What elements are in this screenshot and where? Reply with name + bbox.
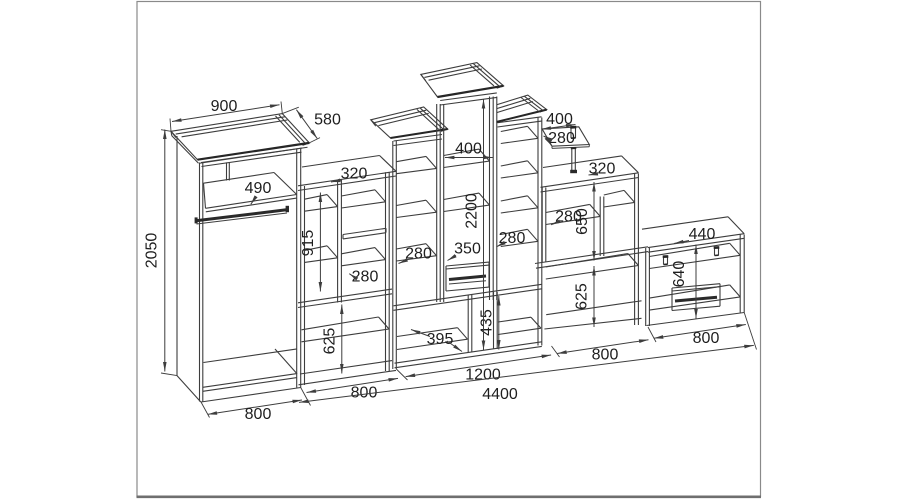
svg-text:900: 900 — [211, 98, 238, 115]
svg-text:800: 800 — [592, 347, 619, 364]
svg-text:280: 280 — [405, 246, 432, 263]
svg-text:640: 640 — [671, 261, 688, 288]
svg-text:650: 650 — [574, 208, 591, 235]
svg-text:800: 800 — [245, 406, 272, 423]
svg-text:800: 800 — [693, 330, 720, 347]
svg-text:4400: 4400 — [482, 386, 518, 403]
svg-text:350: 350 — [454, 241, 481, 258]
svg-text:625: 625 — [322, 328, 339, 355]
svg-text:2050: 2050 — [144, 233, 161, 269]
svg-text:400: 400 — [455, 141, 482, 158]
svg-text:395: 395 — [427, 331, 454, 348]
svg-text:440: 440 — [689, 226, 716, 243]
svg-text:2200: 2200 — [464, 193, 481, 229]
svg-text:915: 915 — [300, 230, 317, 257]
svg-text:320: 320 — [341, 166, 368, 183]
svg-text:625: 625 — [574, 283, 591, 310]
svg-text:490: 490 — [245, 180, 272, 197]
svg-text:580: 580 — [314, 112, 341, 129]
